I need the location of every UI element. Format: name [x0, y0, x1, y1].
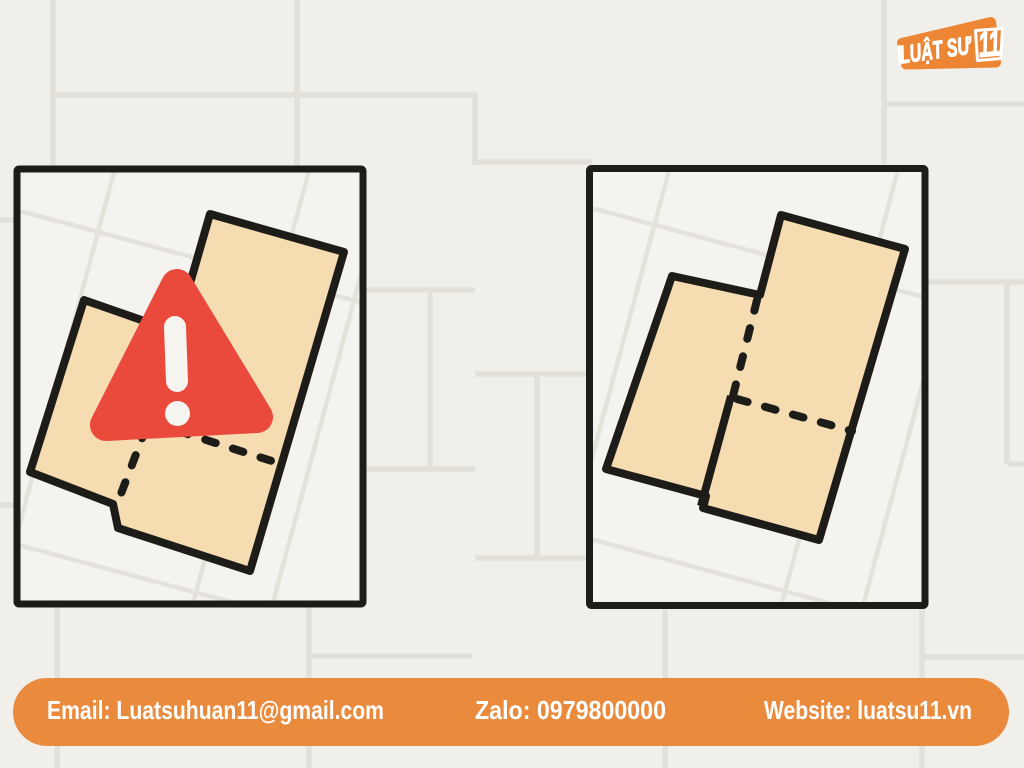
- svg-text:11: 11: [977, 22, 1002, 65]
- svg-text:Zalo: 0979800000: Zalo: 0979800000: [475, 695, 666, 725]
- svg-text:Website: luatsu11.vn: Website: luatsu11.vn: [764, 695, 972, 725]
- svg-text:Email: Luatsuhuan11@gmail.com: Email: Luatsuhuan11@gmail.com: [47, 695, 384, 725]
